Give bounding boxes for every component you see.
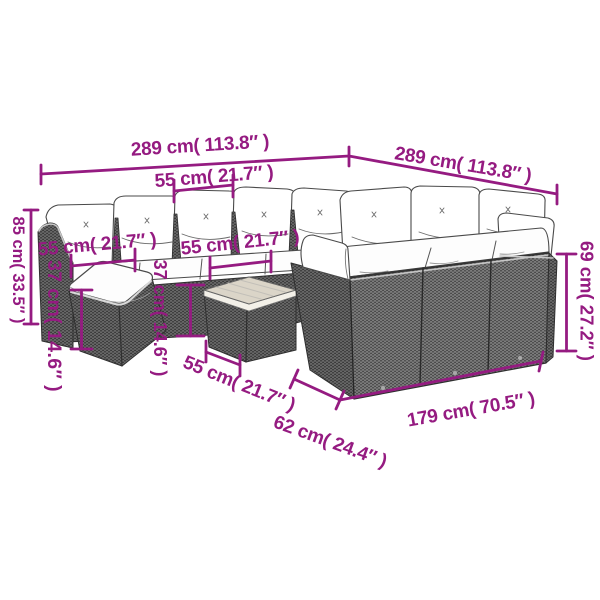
- svg-text:69 cm( 27.2″ ): 69 cm( 27.2″ ): [577, 241, 598, 361]
- svg-text:37 cm( 14.6″ ): 37 cm( 14.6″ ): [43, 260, 65, 392]
- svg-text:37 cm( 14.6″ ): 37 cm( 14.6″ ): [150, 260, 170, 377]
- svg-text:85 cm( 33.5″ ): 85 cm( 33.5″ ): [9, 217, 27, 324]
